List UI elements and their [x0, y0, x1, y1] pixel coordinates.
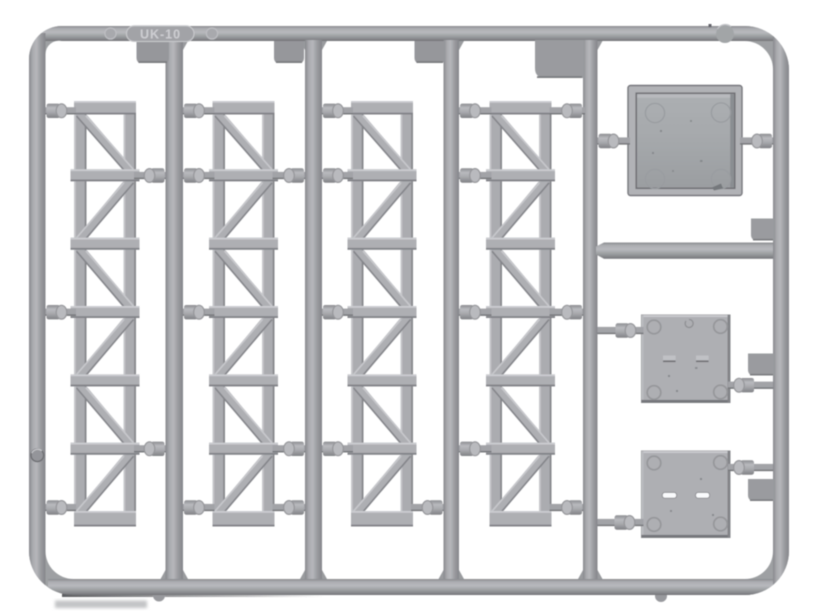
svg-text:UK-10: UK-10	[140, 27, 181, 41]
